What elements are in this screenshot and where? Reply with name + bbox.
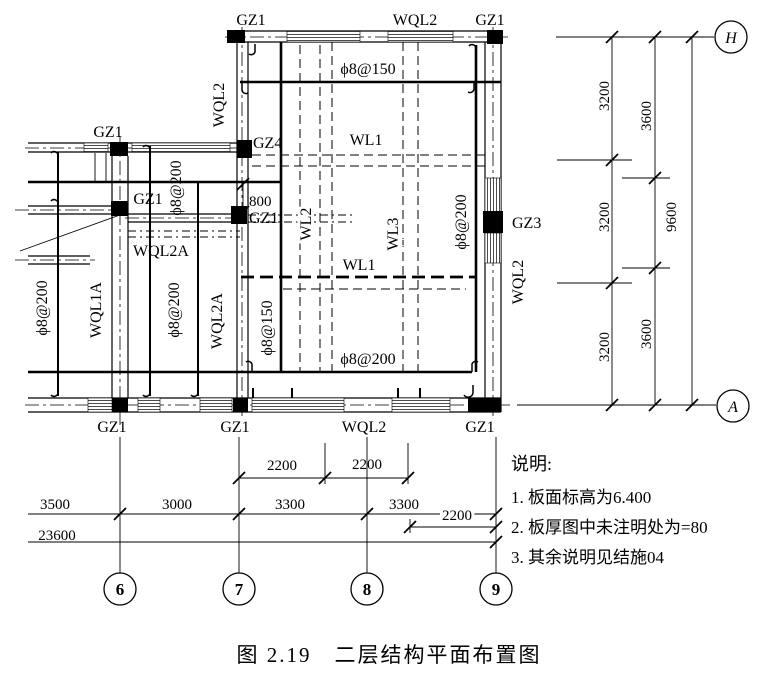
label-phi8-200-a-v: ϕ8@200 (34, 280, 51, 335)
dim-3600-2: 3600 (639, 319, 655, 349)
label-gz1-b9: GZ1 (465, 419, 494, 436)
label-gz4: GZ4 (253, 135, 282, 152)
notes-title: 说明: (511, 454, 552, 474)
dim-3200-3: 3200 (597, 332, 613, 362)
label-800: 800 (249, 194, 272, 210)
dim-23600: 23600 (38, 528, 76, 544)
column-gz1-grid9 (468, 398, 501, 412)
dimension-lines-bottom (28, 437, 502, 573)
label-gz1-top-right: GZ1 (475, 12, 504, 29)
label-phi8-200-wing-v: ϕ8@200 (168, 160, 185, 215)
notes: 说明: 1. 板面标高为6.400 2. 板厚图中未注明处为=80 3. 其余说… (511, 454, 708, 567)
label-phi8-200-b-v: ϕ8@200 (166, 282, 183, 337)
axis-label-a: A (727, 399, 738, 416)
label-wql2-left-v: WQL2 (211, 83, 228, 127)
dim-3300-1: 3300 (275, 497, 305, 513)
axis-label-8: 8 (363, 580, 372, 599)
label-phi8-200-room-v: ϕ8@200 (453, 194, 470, 249)
label-wql2-right-v: WQL2 (510, 260, 527, 304)
dim-3600-1: 3600 (639, 101, 655, 131)
label-phi8-200-bottom: ϕ8@200 (340, 351, 395, 368)
column-gz1-top-left (227, 30, 245, 43)
label-gz3: GZ3 (512, 215, 541, 232)
notes-line-1: 1. 板面标高为6.400 (511, 488, 651, 507)
dimension-lines-right (517, 31, 716, 411)
axis-label-7: 7 (235, 580, 244, 599)
column-gz1-top-right (487, 30, 503, 44)
label-wl1-lower: WL1 (343, 257, 376, 274)
label-phi8-150-top: ϕ8@150 (340, 61, 395, 78)
notes-line-2: 2. 板厚图中未注明处为=80 (511, 518, 708, 537)
column-gz4 (237, 140, 252, 158)
dim-2200-1: 2200 (267, 458, 297, 474)
axis-label-9: 9 (492, 580, 501, 599)
dim-2200-2: 2200 (352, 457, 382, 473)
axis-label-h: H (724, 30, 738, 47)
label-wql1a-v: WQL1A (88, 282, 105, 338)
column-gz1-wall-a (111, 201, 128, 216)
structural-plan-page: H A 6 7 8 9 GZ1 WQL2 GZ1 GZ1 GZ4 ϕ8@150 … (0, 0, 766, 677)
figure-caption: 图 2.19 二层结构平面布置图 (237, 643, 542, 667)
dim-3200-2: 3200 (597, 202, 613, 232)
column-gz1-grid7 (233, 398, 248, 412)
label-gz1-wing-top: GZ1 (93, 124, 122, 141)
label-wql2-bottom: WQL2 (342, 419, 386, 436)
dim-3200-1: 3200 (597, 81, 613, 111)
column-gz1-wing-top (110, 142, 128, 156)
label-wl3-v: WL3 (385, 218, 402, 251)
label-gz1-axis7: GZ1 (249, 210, 278, 227)
label-gz1-wing-mid: GZ1 (133, 191, 162, 208)
label-gz1-b6: GZ1 (97, 419, 126, 436)
dim-3500: 3500 (40, 497, 70, 513)
structural-plan-drawing: H A 6 7 8 9 GZ1 WQL2 GZ1 GZ1 GZ4 ϕ8@150 … (0, 0, 766, 677)
dim-3000: 3000 (162, 497, 192, 513)
label-gz1-b7: GZ1 (220, 419, 249, 436)
column-gz3 (483, 211, 503, 233)
label-wql2-top: WQL2 (393, 12, 437, 29)
axis-centerlines (15, 27, 510, 428)
label-phi8-150-v: ϕ8@150 (259, 300, 276, 355)
dim-3300-2: 3300 (389, 497, 419, 513)
label-wl2-v: WL2 (298, 208, 315, 241)
column-gz1-grid6 (112, 398, 128, 412)
notes-line-3: 3. 其余说明见结施04 (511, 548, 664, 567)
dim-9600: 9600 (664, 202, 680, 232)
label-gz1-top-left: GZ1 (236, 12, 265, 29)
axis-label-6: 6 (116, 580, 125, 599)
label-wql2a-v: WQL2A (209, 293, 226, 349)
dim-2200-3: 2200 (442, 508, 472, 524)
label-wql2a-h: WQL2A (133, 243, 189, 260)
label-wl1-upper: WL1 (350, 132, 383, 149)
